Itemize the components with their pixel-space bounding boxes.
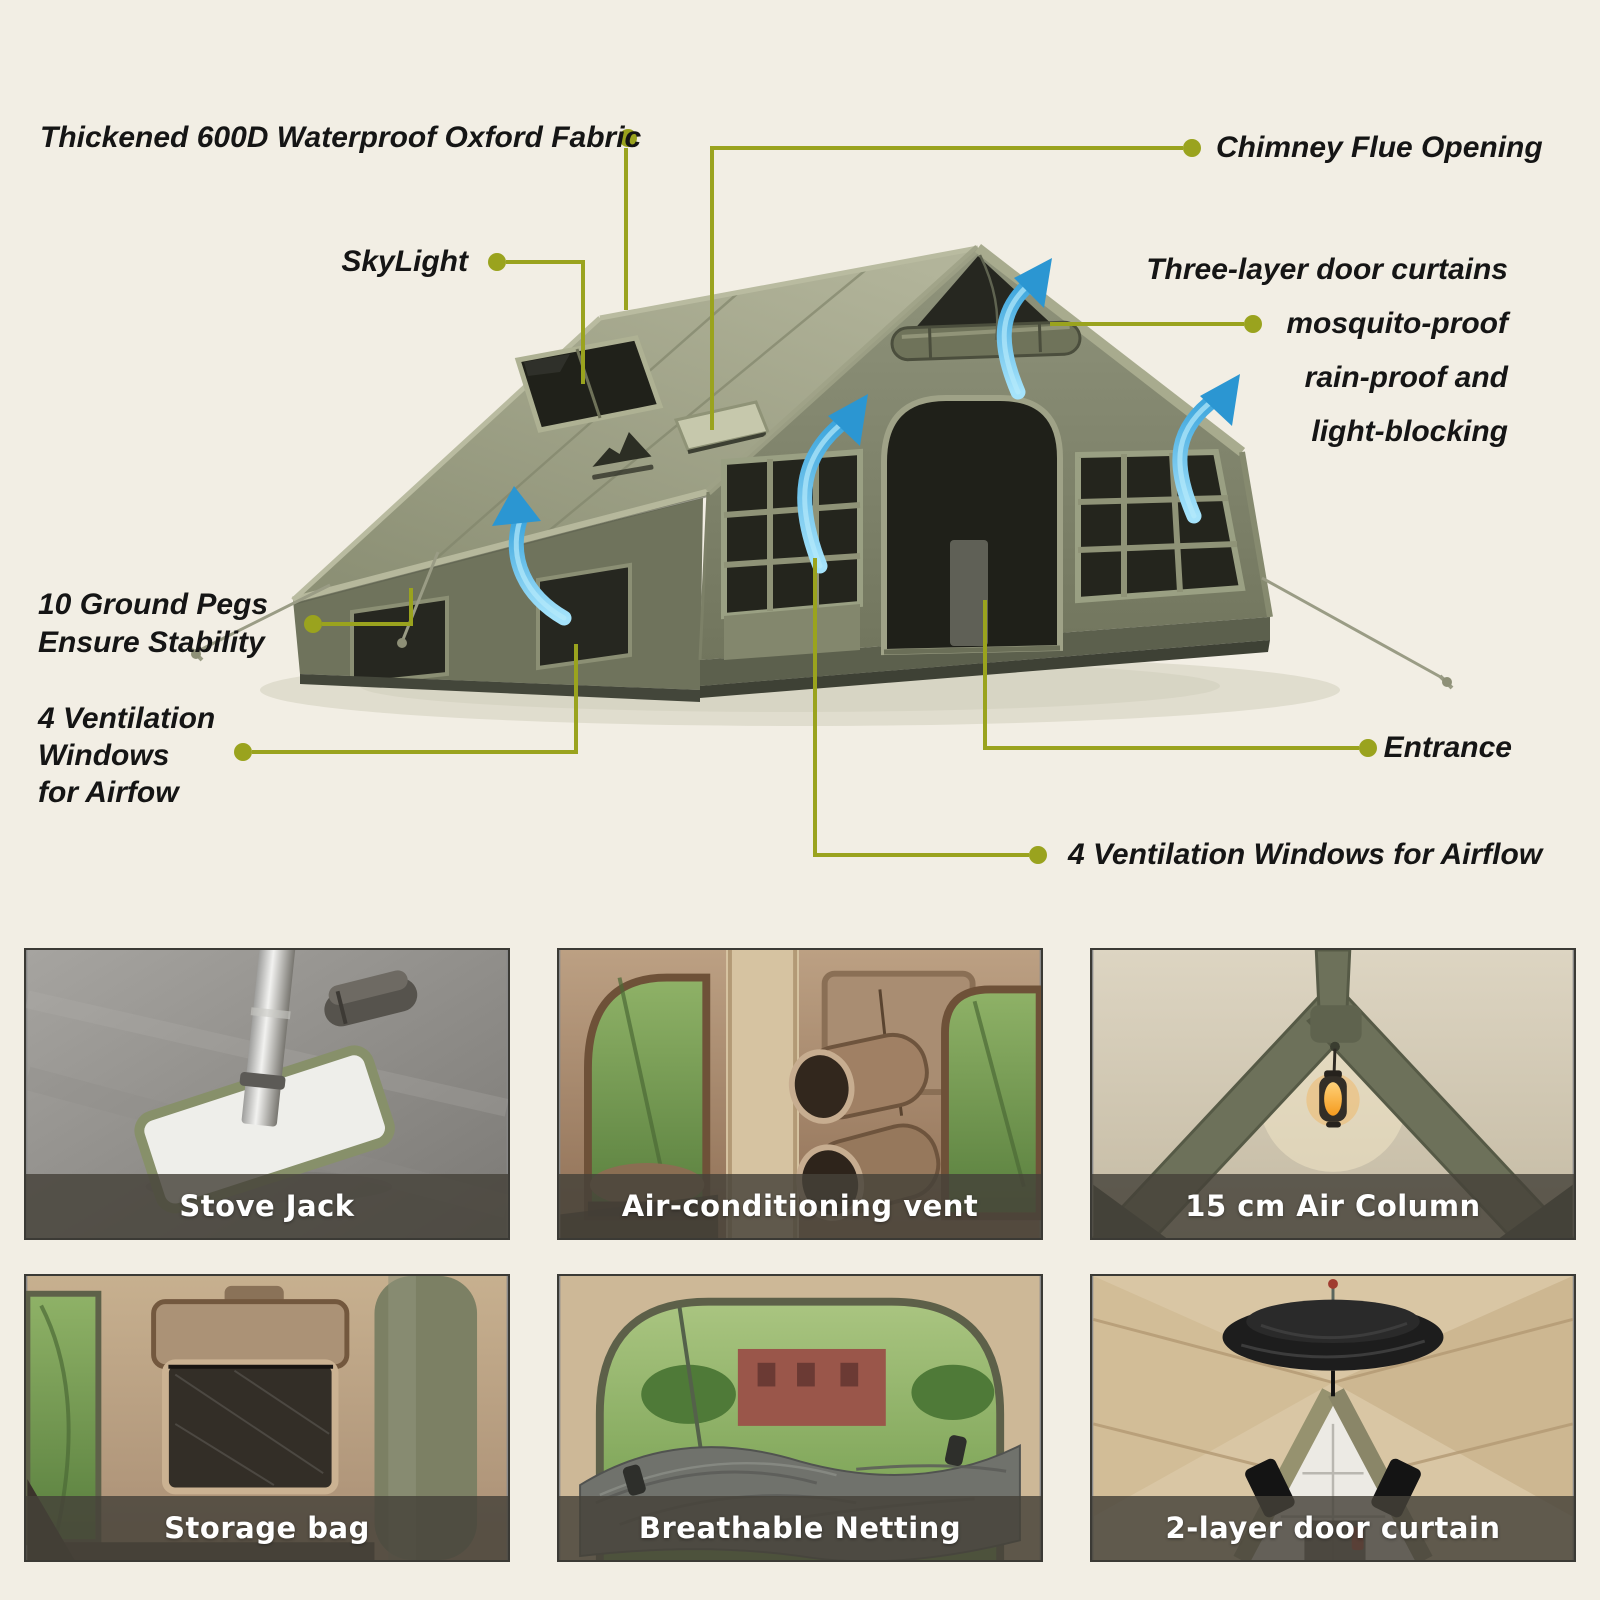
gallery-tile-breathable-netting: Breathable Netting	[557, 1274, 1043, 1562]
gallery-tile-air-column: 15 cm Air Column	[1090, 948, 1576, 1240]
callout-entrance: Entrance	[1384, 733, 1512, 763]
leader-line-vent-bottom	[813, 558, 817, 857]
tile-caption: Air-conditioning vent	[559, 1174, 1041, 1238]
callout-fabric: Thickened 600D Waterproof Oxford Fabric	[40, 123, 641, 153]
callout-vent-left: 4 Ventilation Windows for Airfow	[38, 704, 215, 815]
tile-caption: 15 cm Air Column	[1092, 1174, 1574, 1238]
callout-line: light-blocking	[1146, 405, 1508, 459]
leader-line-vent-bottom	[815, 853, 1029, 857]
leader-line-vent-left	[574, 644, 578, 754]
tile-caption: Breathable Netting	[559, 1496, 1041, 1560]
gallery-tile-ac-vent: Air-conditioning vent	[557, 948, 1043, 1240]
pocket-flap	[154, 1302, 347, 1367]
mesh-pocket	[165, 1363, 335, 1491]
leader-line-skylight	[581, 260, 585, 384]
leader-line-fabric	[624, 148, 628, 310]
callout-ground-pegs: 10 Ground Pegs Ensure Stability	[38, 590, 268, 666]
leader-line-ground-pegs	[322, 622, 413, 626]
leader-line-ground-pegs	[409, 588, 413, 626]
leader-dot-vent-bottom	[1029, 846, 1047, 864]
leader-line-chimney	[712, 146, 1183, 150]
tile-caption: Stove Jack	[26, 1174, 508, 1238]
leader-line-vent-left	[252, 750, 578, 754]
callout-chimney: Chimney Flue Opening	[1216, 133, 1543, 163]
leader-dot-vent-left	[234, 743, 252, 761]
callout-door-curtains: Three-layer door curtains mosquito-proof…	[1146, 243, 1508, 459]
callout-line: Three-layer door curtains	[1146, 243, 1508, 297]
tile-caption: Storage bag	[26, 1496, 508, 1560]
leader-line-chimney	[710, 146, 714, 430]
leader-line-entrance	[983, 600, 987, 750]
ground-peg	[397, 638, 407, 648]
leader-dot-skylight	[488, 253, 506, 271]
front-right-window	[1078, 452, 1242, 600]
leader-dot-ground-pegs	[304, 615, 322, 633]
leader-dot-entrance	[1359, 739, 1377, 757]
entrance-door	[884, 398, 1060, 652]
callout-line: Windows	[38, 741, 215, 778]
gallery-tile-stove-jack: Stove Jack	[24, 948, 510, 1240]
callout-line: rain-proof and	[1146, 351, 1508, 405]
product-infographic: Thickened 600D Waterproof Oxford Fabric …	[0, 0, 1600, 1600]
rolled-door-curtain	[891, 321, 1080, 361]
gallery-tile-storage-bag: Storage bag	[24, 1274, 510, 1562]
callout-line: Ensure Stability	[38, 628, 268, 666]
leader-dot-chimney	[1183, 139, 1201, 157]
leader-line-skylight	[506, 260, 585, 264]
ground-peg	[1442, 677, 1452, 687]
leader-line-entrance	[985, 746, 1359, 750]
callout-line: mosquito-proof	[1146, 297, 1508, 351]
callout-skylight: SkyLight	[341, 247, 468, 277]
callout-line: 10 Ground Pegs	[38, 590, 268, 628]
tile-caption: 2-layer door curtain	[1092, 1496, 1574, 1560]
front-left-window	[724, 452, 860, 660]
callout-line: for Airfow	[38, 778, 215, 815]
gallery-tile-door-curtain: 2-layer door curtain	[1090, 1274, 1576, 1562]
callout-line: 4 Ventilation	[38, 704, 215, 741]
callout-vent-bottom: 4 Ventilation Windows for Airflow	[1068, 840, 1542, 870]
